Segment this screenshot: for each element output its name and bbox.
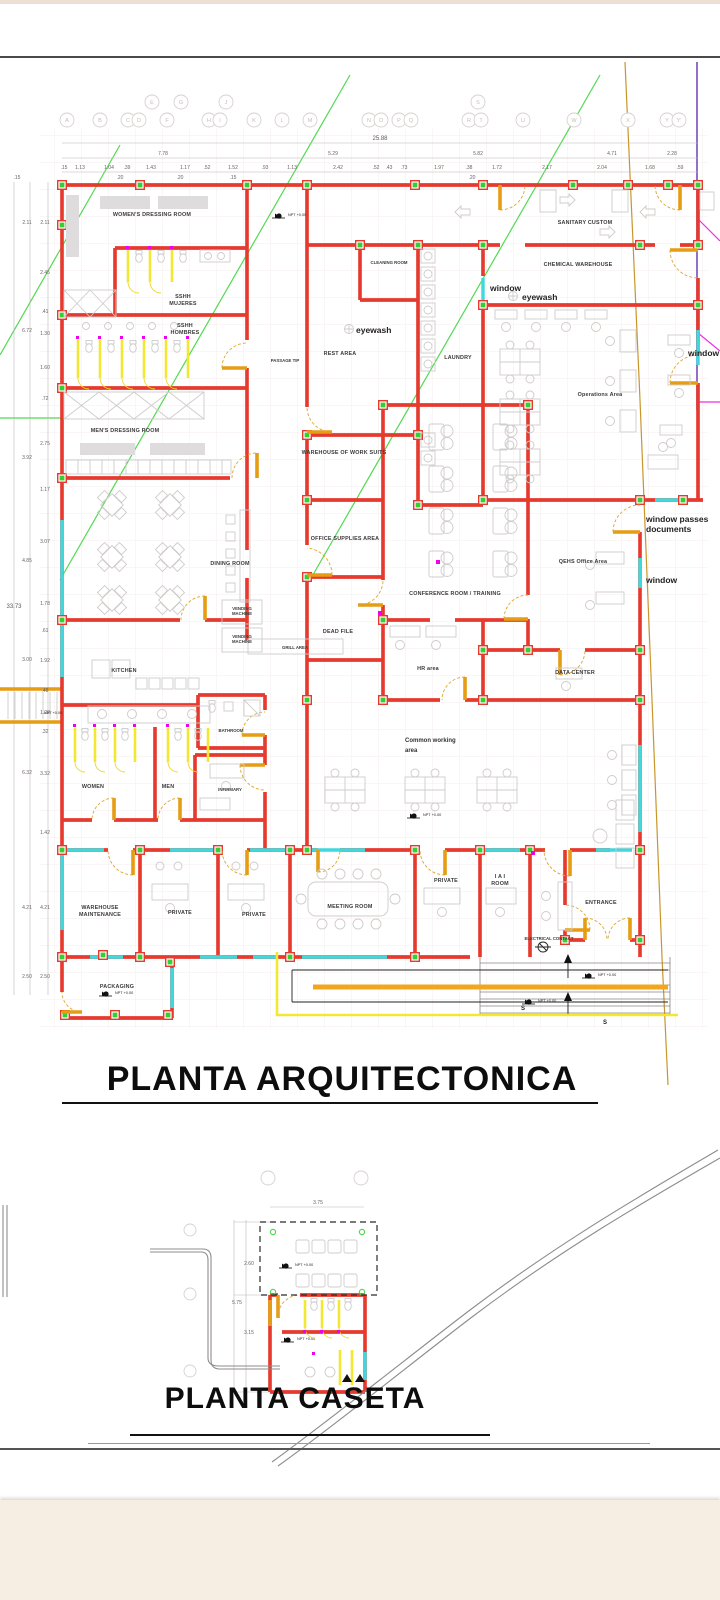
dim: .93 <box>262 165 269 171</box>
dim-caseta: 3.15 <box>244 1330 254 1336</box>
bottom-rule <box>0 1448 720 1450</box>
dim: 1.17 <box>180 165 190 171</box>
dim: 1.43 <box>146 165 156 171</box>
grid-letter: S <box>476 100 480 106</box>
window-passes-annotation: window passes <box>645 514 709 524</box>
dim: .20 <box>469 175 476 181</box>
grid-letter: R <box>467 118 471 124</box>
dim: 7.78 <box>158 151 168 157</box>
room-label-men: MEN <box>162 784 175 790</box>
npt-label: NPT +0.00 <box>115 991 133 995</box>
room-label-operations: Operations Area <box>578 392 624 398</box>
dim: .73 <box>401 165 408 171</box>
dim-caseta: 2.60 <box>244 1261 254 1267</box>
main-plan-title: PLANTA ARQUITECTONICA <box>62 1060 622 1099</box>
dim: 5.29 <box>328 151 338 157</box>
vending-machine-label2: MACHINE <box>232 611 252 616</box>
main-title-underline <box>62 1102 598 1104</box>
dim: 1.60 <box>40 365 50 371</box>
vending-machine-label4: MACHINE <box>232 639 252 644</box>
grid-letter: O <box>379 118 384 124</box>
room-label-office-supplies: OFFICE SUPPLIES AREA <box>311 536 380 542</box>
room-label-sshh-hombres2: HOMBRES <box>171 330 200 336</box>
dim: .15 <box>230 175 237 181</box>
dim: .41 <box>42 309 49 315</box>
dim: 6.32 <box>22 770 32 776</box>
room-label-meeting: MEETING ROOM <box>327 904 373 910</box>
room-label-mens-dressing: MEN'S DRESSING ROOM <box>91 428 160 434</box>
grid-letter: H <box>207 118 211 124</box>
dim: .20 <box>117 175 124 181</box>
dim: 1.72 <box>492 165 502 171</box>
npt-label: NPT +0.00 <box>598 973 616 977</box>
room-label-common-working: Common working <box>405 738 456 744</box>
dim: .61 <box>42 628 49 634</box>
dim: 4.71 <box>607 151 617 157</box>
room-label-iai: I A I <box>495 874 506 880</box>
dim: 1.13 <box>75 165 85 171</box>
room-label-passage: PASSAGE TIP <box>271 358 300 363</box>
floor-plan-canvas: A B C D F H I K L M N O P Q R T U W X Y … <box>0 0 720 1600</box>
stair-s-label: S <box>603 1020 607 1026</box>
dim: 1.42 <box>40 830 50 836</box>
window-annotation-qehs: window <box>645 575 678 585</box>
room-label-packaging: PACKAGING <box>100 984 134 990</box>
room-label-qehs: QEHS Office Area <box>559 559 608 565</box>
dim: 4.85 <box>22 558 32 564</box>
dim: 6.72 <box>22 328 32 334</box>
npt-label: NPT +0.00 <box>295 1263 313 1267</box>
room-label-sshh-mujeres: SSHH <box>175 294 191 300</box>
room-label-sshh-hombres: SSHH <box>177 323 193 329</box>
grid-letter: Y' <box>677 118 682 124</box>
room-label-iai2: ROOM <box>491 881 509 887</box>
room-label-warehouse-suits: WAREHOUSE OF WORK SUITS <box>302 450 387 456</box>
room-label-warehouse-maintenance: WAREHOUSE <box>81 905 118 911</box>
grid-letter: Y <box>665 118 669 124</box>
grid-letter: A <box>65 118 69 124</box>
room-label-cleaning: CLEANING ROOM <box>371 260 408 265</box>
grid-letter: M <box>308 118 313 124</box>
dim: 2.04 <box>597 165 607 171</box>
room-label-infirmary: INFIRMARY <box>218 787 242 792</box>
room-label-dining: DINING ROOM <box>210 561 250 567</box>
npt-label: NPT +0.00 <box>538 999 556 1003</box>
room-label-sanitary: SANITARY CUSTOM <box>558 220 613 226</box>
room-label-rest-area: REST AREA <box>324 351 357 357</box>
dim-total-left: 33.73 <box>6 604 22 610</box>
dim: 1.13 <box>287 165 297 171</box>
dim: 1.52 <box>228 165 238 171</box>
dim: .52 <box>204 165 211 171</box>
drawing-sheet: A B C D F H I K L M N O P Q R T U W X Y … <box>0 0 720 1600</box>
grid-letter: N <box>367 118 371 124</box>
dim: .20 <box>177 175 184 181</box>
room-label-electrical: ELECTRICAL CONTACT <box>524 936 573 941</box>
room-label-common-working2: area <box>405 748 418 754</box>
grid-letter: E <box>150 100 154 106</box>
npt-label: NPT +0.00 <box>423 813 441 817</box>
grid-letter: J <box>225 100 228 106</box>
grid-letter: W <box>571 118 577 124</box>
room-label-hr: HR area <box>417 666 440 672</box>
npt-label: NPT +0.00 <box>288 213 306 217</box>
dim: 2.28 <box>667 151 677 157</box>
dim: 1.30 <box>40 331 50 337</box>
room-label-laundry: LAUNDRY <box>444 355 472 361</box>
window-annotation-right: window <box>687 348 720 358</box>
dim: 3.92 <box>22 455 32 461</box>
room-label-warehouse-maintenance2: MAINTENANCE <box>79 912 121 918</box>
room-label-data-center: DATA CENTER <box>555 670 595 676</box>
room-label-womens-dressing: WOMEN'S DRESSING ROOM <box>113 212 192 218</box>
grid-letter: U <box>521 118 525 124</box>
dim: .72 <box>42 396 49 402</box>
caseta-gray-rule <box>88 1443 650 1444</box>
dim: .43 <box>386 165 393 171</box>
room-label-conference: CONFERENCE ROOM / TRAINING <box>409 591 501 597</box>
dim: 2.45 <box>40 270 50 276</box>
room-label-bathroom: BATHROOM <box>219 728 244 733</box>
room-label-dead-file: DEAD FILE <box>323 629 353 635</box>
grid-letter: B <box>98 118 102 124</box>
dim: 1.92 <box>40 658 50 664</box>
dim: 2.75 <box>40 441 50 447</box>
dim: 2.42 <box>333 165 343 171</box>
room-label-private-1: PRIVATE <box>168 910 192 916</box>
room-label-entrance: ENTRANCE <box>585 900 617 906</box>
dim: 1.29 <box>40 710 50 716</box>
room-label-private-3: PRIVATE <box>434 878 458 884</box>
dim: 1.97 <box>434 165 444 171</box>
room-label-grill: GRILL AREA <box>282 645 308 650</box>
dim: .38 <box>466 165 473 171</box>
dim: 4.21 <box>22 905 32 911</box>
grid-letter: C <box>126 118 130 124</box>
dim-total-top: 25.88 <box>372 136 388 142</box>
grid-letter: D <box>137 118 141 124</box>
dim: 1.78 <box>40 601 50 607</box>
grid-letter: L <box>280 118 283 124</box>
dim: .15 <box>14 175 21 181</box>
dim: .32 <box>42 729 49 735</box>
dim-caseta: 5.75 <box>232 1300 242 1306</box>
bottom-margin-strip <box>0 1500 720 1600</box>
room-label-private-2: PRIVATE <box>242 912 266 918</box>
room-label-women: WOMEN <box>82 784 104 790</box>
grid-letter: Q <box>409 118 414 124</box>
window-annotation-chemical: window <box>489 283 522 293</box>
caseta-plan-title: PLANTA CASETA <box>95 1382 495 1416</box>
dim: .15 <box>61 165 68 171</box>
grid-letter: P <box>397 118 401 124</box>
eyewash-annotation-rest: eyewash <box>356 325 391 335</box>
stair-s-label: S <box>521 1006 525 1012</box>
grid-letter: G <box>179 100 183 106</box>
room-label-chemical: CHEMICAL WAREHOUSE <box>544 262 613 268</box>
dim: 2.11 <box>22 220 32 226</box>
dim: .48 <box>42 688 49 694</box>
eyewash-annotation-chemical: eyewash <box>522 292 557 302</box>
dim: .52 <box>373 165 380 171</box>
dim: 2.50 <box>40 974 50 980</box>
dim: 1.04 <box>104 165 114 171</box>
dim: 3.00 <box>22 657 32 663</box>
dim: 3.07 <box>40 539 50 545</box>
dim: 1.17 <box>40 487 50 493</box>
room-label-kitchen: KITCHEN <box>111 668 136 674</box>
dim-caseta: 3.75 <box>313 1200 323 1206</box>
dim: 2.11 <box>40 220 50 226</box>
dim: 2.17 <box>542 165 552 171</box>
dim: .59 <box>677 165 684 171</box>
caseta-title-underline <box>130 1434 490 1436</box>
dim: 3.32 <box>40 771 50 777</box>
dim: 5.82 <box>473 151 483 157</box>
dim: 1.68 <box>645 165 655 171</box>
grid-letter: K <box>252 118 256 124</box>
dim: 4.21 <box>40 905 50 911</box>
grid-letter: X <box>626 118 630 124</box>
dim: .39 <box>124 165 131 171</box>
room-label-sshh-mujeres2: MUJERES <box>169 301 197 307</box>
window-passes-annotation2: documents <box>646 524 692 534</box>
dim: 2.50 <box>22 974 32 980</box>
